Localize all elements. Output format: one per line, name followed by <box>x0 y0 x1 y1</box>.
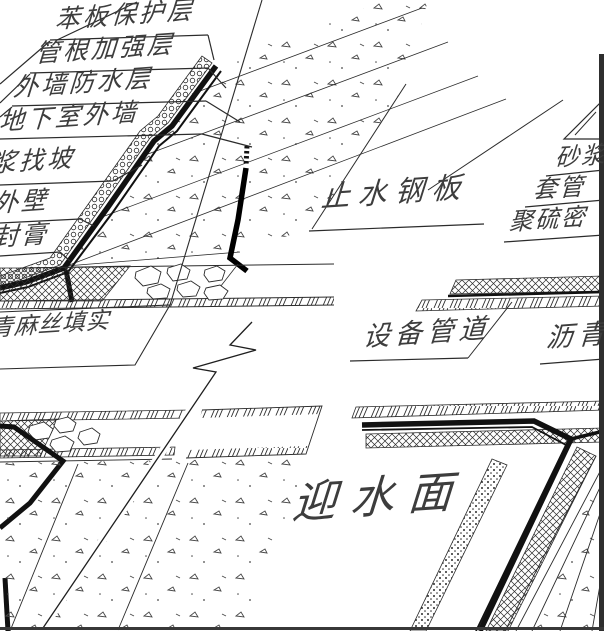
label-sleeve-outer-wall: 外壁 <box>0 188 50 217</box>
label-sleeve-cut: 套管 <box>532 175 586 203</box>
slab-strip <box>0 264 334 309</box>
label-sealant: 封膏 <box>0 222 50 251</box>
bottom-left-band <box>0 406 322 631</box>
label-mortar-cut: 砂浆 <box>554 143 604 171</box>
bottom-border <box>0 627 604 630</box>
label-polysulfide-sealant-cut: 聚硫密 <box>508 206 588 236</box>
construction-detail-drawing: 苯板保护层 管根加强层 外墙防水层 地下室外墙 浆找坡 外壁 封膏 青麻丝填实 … <box>0 0 604 631</box>
label-mortar-slope: 浆找坡 <box>0 146 76 177</box>
stone-fill <box>135 264 228 300</box>
label-asphalt-cut: 沥青 <box>545 321 604 353</box>
